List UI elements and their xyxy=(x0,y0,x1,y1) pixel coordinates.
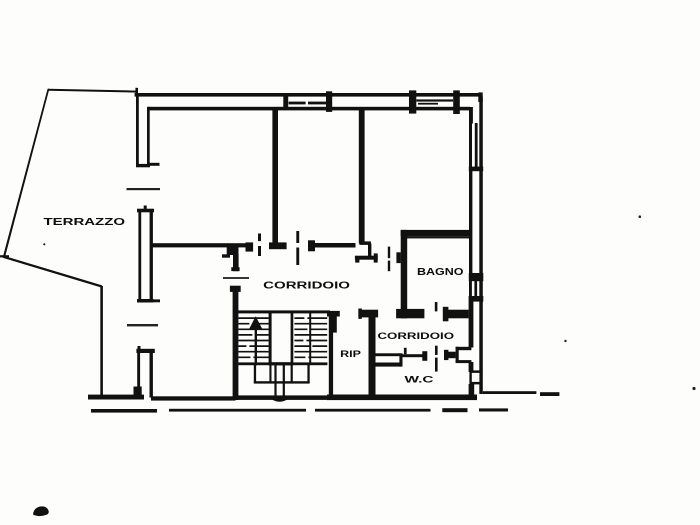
svg-text:W.C: W.C xyxy=(405,374,435,384)
svg-text:CORRIDOIO: CORRIDOIO xyxy=(378,331,455,341)
svg-text:CORRIDOIO: CORRIDOIO xyxy=(263,280,350,291)
svg-text:TERRAZZO: TERRAZZO xyxy=(44,217,126,228)
svg-text:RIP: RIP xyxy=(340,349,361,359)
svg-text:BAGNO: BAGNO xyxy=(417,267,464,278)
